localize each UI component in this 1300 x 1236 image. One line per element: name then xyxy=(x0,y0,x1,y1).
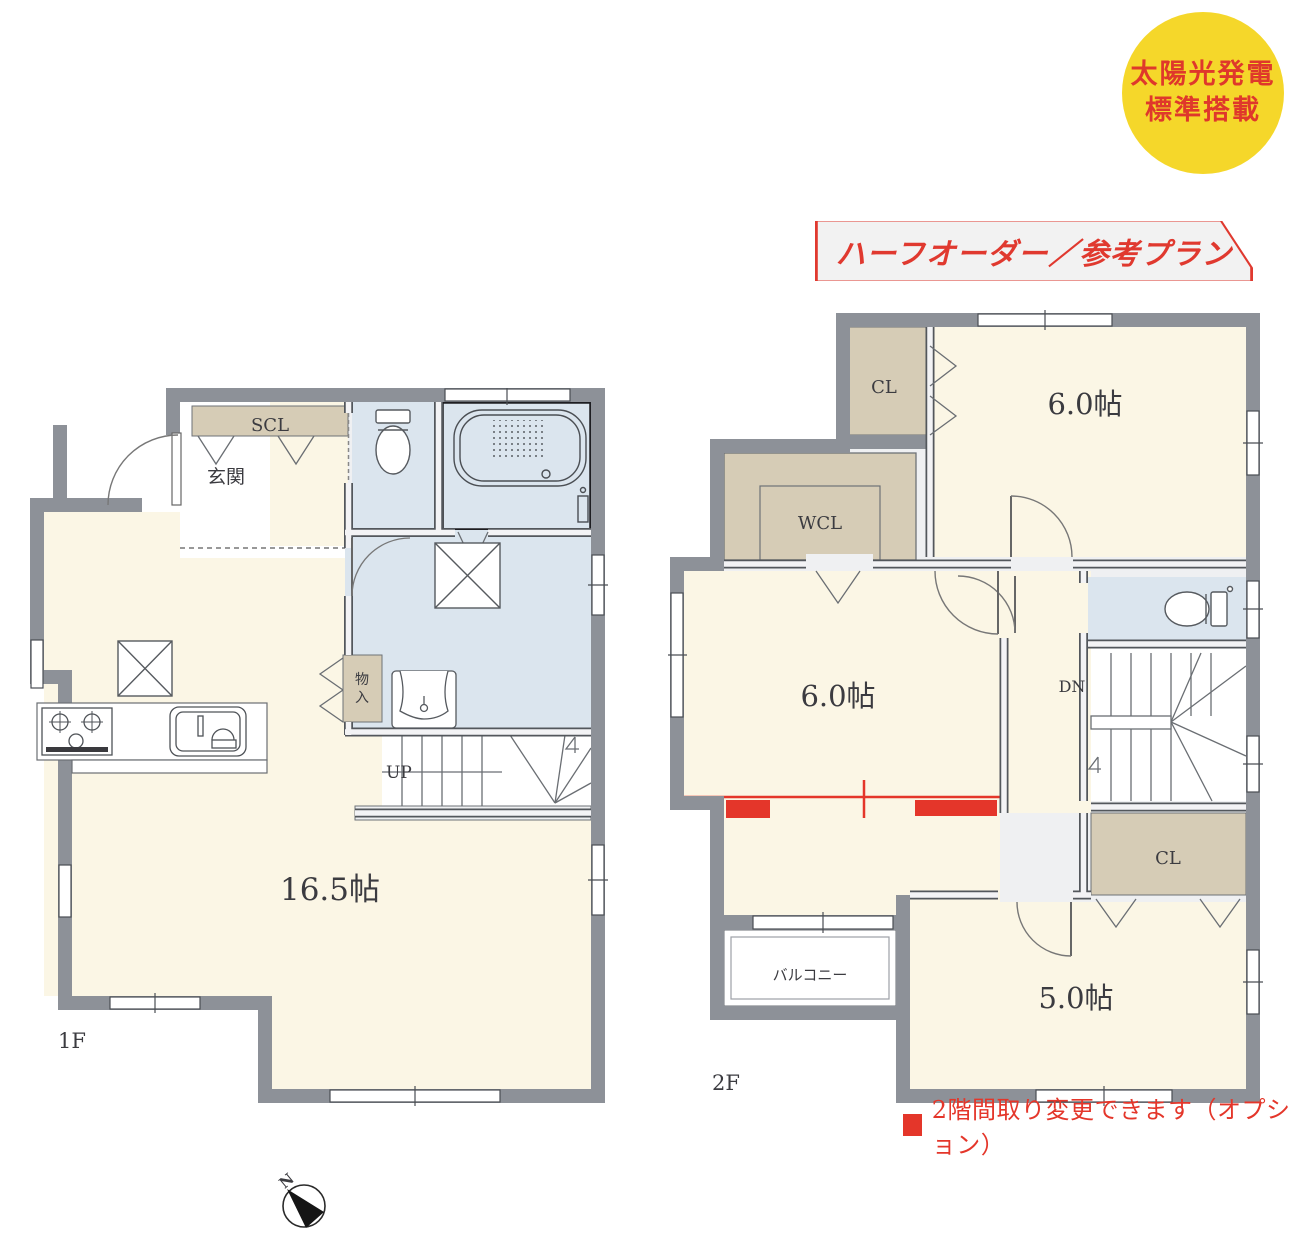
washbasin xyxy=(392,671,456,728)
closet-monoire xyxy=(343,655,382,722)
label-room-5: 5.0帖 xyxy=(1038,981,1113,1015)
label-floor-1f: 1F xyxy=(58,1029,86,1053)
room-toilet-1f xyxy=(352,402,435,548)
option-note-square xyxy=(903,1114,922,1136)
option-note-text: 2階間取り変更できます（オプション） xyxy=(932,1090,1300,1160)
label-cl-north: CL xyxy=(871,377,897,398)
option-note: 2階間取り変更できます（オプション） xyxy=(903,1110,1300,1140)
label-up: UP xyxy=(386,763,412,783)
solar-badge: 太陽光発電 標準搭載 xyxy=(1122,12,1284,174)
label-balcony: バルコニー xyxy=(773,966,848,984)
label-dn: DN xyxy=(1059,677,1086,696)
room-6a xyxy=(930,327,1246,557)
label-room-6a: 6.0帖 xyxy=(1047,387,1122,421)
label-monoire-1: 物 xyxy=(355,672,369,688)
label-cl-south: CL xyxy=(1155,848,1181,869)
label-ldk: 16.5帖 xyxy=(280,872,380,908)
compass-north-label: N xyxy=(276,1169,298,1192)
label-monoire-2: 入 xyxy=(355,690,369,706)
floorplan-page: 太陽光発電 標準搭載 ハーフオーダー／参考プラン xyxy=(0,0,1300,1236)
closet-wcl xyxy=(724,453,916,564)
floor-plan-1f: SCL 玄関 物 入 UP 16.5帖 1F xyxy=(30,388,615,1113)
front-door xyxy=(108,433,181,505)
label-genkan: 玄関 xyxy=(207,466,245,488)
washer-space xyxy=(435,543,500,608)
label-scl: SCL xyxy=(251,415,289,436)
solar-badge-line1: 太陽光発電 xyxy=(1131,57,1276,93)
sink xyxy=(170,707,246,756)
compass: N xyxy=(252,1166,348,1236)
label-wcl: WCL xyxy=(798,513,842,534)
toilet-fixture-1f xyxy=(376,410,410,474)
floor-plan-2f: CL WCL 6.0帖 6.0帖 DN CL 5.0帖 バルコニー 2F xyxy=(668,308,1268,1108)
plan-type-banner-text: ハーフオーダー／参考プラン xyxy=(836,229,1232,272)
label-room-6b: 6.0帖 xyxy=(800,679,875,713)
fridge-space xyxy=(118,641,172,696)
label-floor-2f: 2F xyxy=(712,1071,740,1095)
plan-type-banner: ハーフオーダー／参考プラン xyxy=(815,221,1253,281)
solar-badge-line2: 標準搭載 xyxy=(1145,93,1261,129)
stove xyxy=(42,708,112,755)
